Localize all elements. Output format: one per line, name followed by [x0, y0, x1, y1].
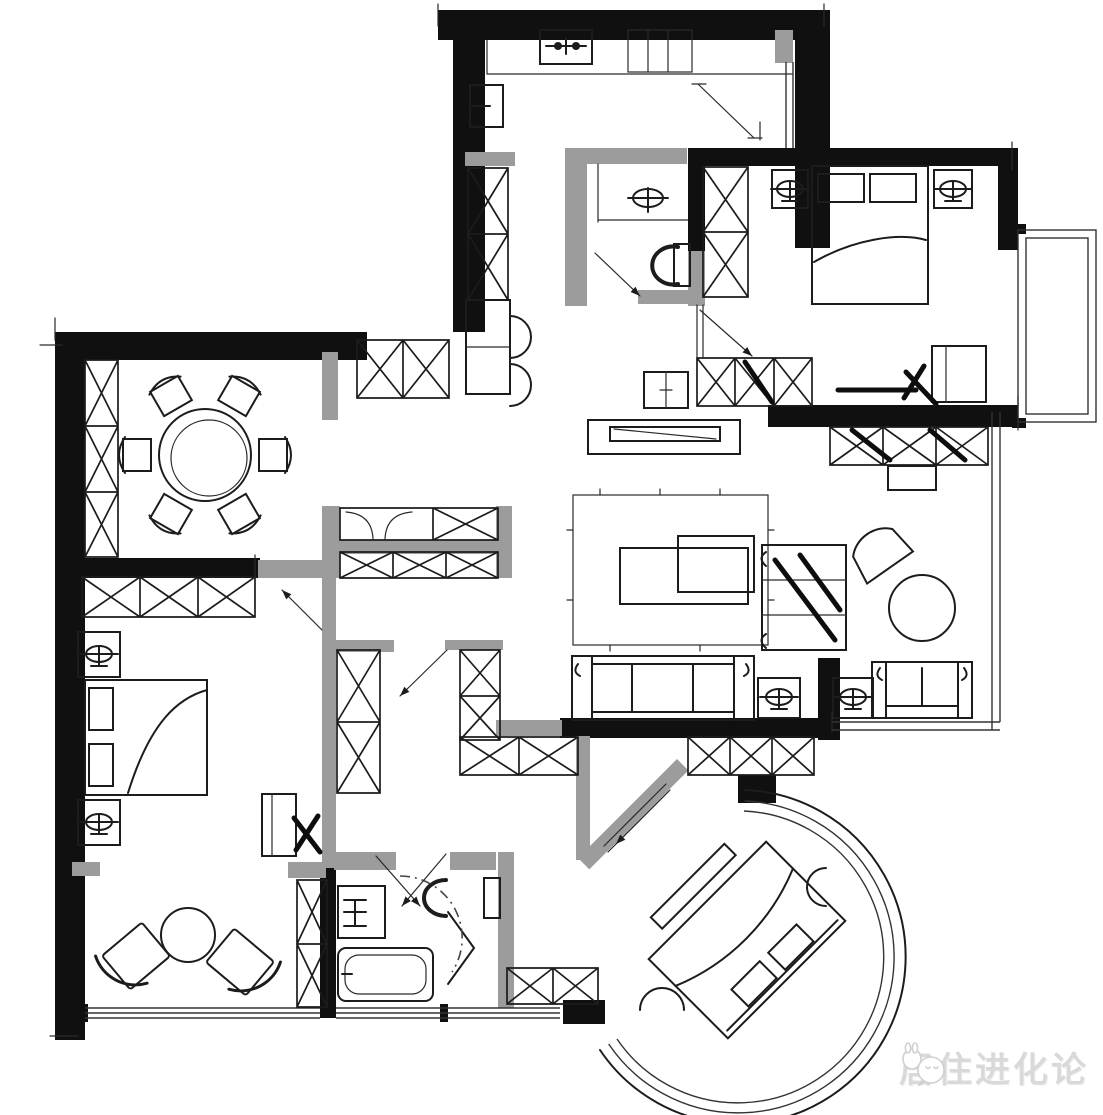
diagonal-wall: [578, 759, 688, 869]
living-room: [567, 420, 846, 720]
dining-chair: [119, 437, 151, 473]
bathtub: [338, 948, 433, 1001]
door-swing-arrow: [376, 856, 420, 906]
master-wardrobe-column: [703, 167, 748, 297]
round-table: [889, 575, 955, 641]
bay-room-cabinet: [507, 968, 598, 1004]
wechat-chat-bubbles-icon: [899, 1042, 951, 1088]
bedroom2-wardrobe-row: [82, 577, 255, 617]
desk-and-chair: [904, 346, 986, 404]
dining-chair: [146, 371, 193, 417]
bathroom-2: [338, 854, 500, 1001]
dining-chair: [146, 493, 193, 539]
loveseat: [872, 662, 972, 718]
door-swing: [692, 84, 762, 138]
hall-tall-column-left: [337, 650, 380, 793]
folding-shower-door: [400, 876, 474, 984]
double-bed: [85, 680, 207, 795]
door-swing-arrow: [400, 650, 447, 696]
pouf: [640, 988, 684, 1010]
nightstand-right: [934, 170, 972, 208]
toilet: [652, 244, 690, 286]
curtain-holdback: [807, 868, 826, 906]
area-rug: [567, 489, 774, 651]
door-swing: [700, 310, 752, 356]
windows: [85, 62, 1096, 1115]
vanity-basin: [338, 886, 385, 938]
kitchen: [466, 30, 792, 406]
dining-room: [119, 371, 291, 538]
small-table: [888, 466, 936, 490]
cabinets: [82, 167, 988, 1007]
curved-window-wall: [600, 790, 906, 1115]
entry-shoe-bench: [357, 340, 449, 398]
bay-window: [1018, 230, 1096, 422]
floor-plan-page: 居住进化论: [0, 0, 1103, 1115]
open-shelf-divider: [762, 545, 847, 650]
washbasin: [628, 188, 668, 212]
toilet: [424, 878, 500, 918]
dining-tall-cabinet: [85, 360, 118, 557]
hall-shoe-cabinet: [644, 372, 688, 408]
floor-plan-drawing: [0, 0, 1103, 1115]
ensuite-bathroom: [595, 164, 690, 296]
round-bay-bedroom: [604, 784, 845, 1038]
door-swing: [595, 253, 640, 296]
coffee-tables: [620, 536, 754, 604]
hall-storage-row: [697, 358, 812, 406]
lamp-side-table: [758, 678, 800, 718]
three-seat-sofa: [572, 656, 754, 720]
watermark: 居住进化论: [899, 1042, 1089, 1093]
entry-direction-arrow: [282, 590, 322, 630]
diagonal-double-bed: [629, 822, 845, 1038]
dining-chair: [216, 493, 263, 539]
dining-chair: [216, 371, 263, 417]
leisure-balcony: [93, 908, 283, 1005]
lounge-window-wall: [832, 412, 1000, 730]
foot-bench: [651, 844, 736, 929]
bedroom-2: [78, 632, 320, 856]
balcony-window-band: [85, 1008, 320, 1018]
hall-tall-column-right: [460, 650, 500, 740]
passage-cabinet-left: [460, 737, 578, 775]
dining-chair: [259, 437, 291, 473]
top-right-window: [786, 62, 793, 148]
passage-cabinet-right: [688, 737, 814, 775]
exterior-walls: [55, 10, 1026, 1040]
sun-lounge: [833, 466, 972, 718]
desk-and-chair: [262, 794, 320, 856]
round-tea-table: [161, 908, 215, 962]
round-dining-table: [159, 409, 251, 501]
tv-console: [588, 420, 740, 454]
armchair: [844, 518, 913, 583]
